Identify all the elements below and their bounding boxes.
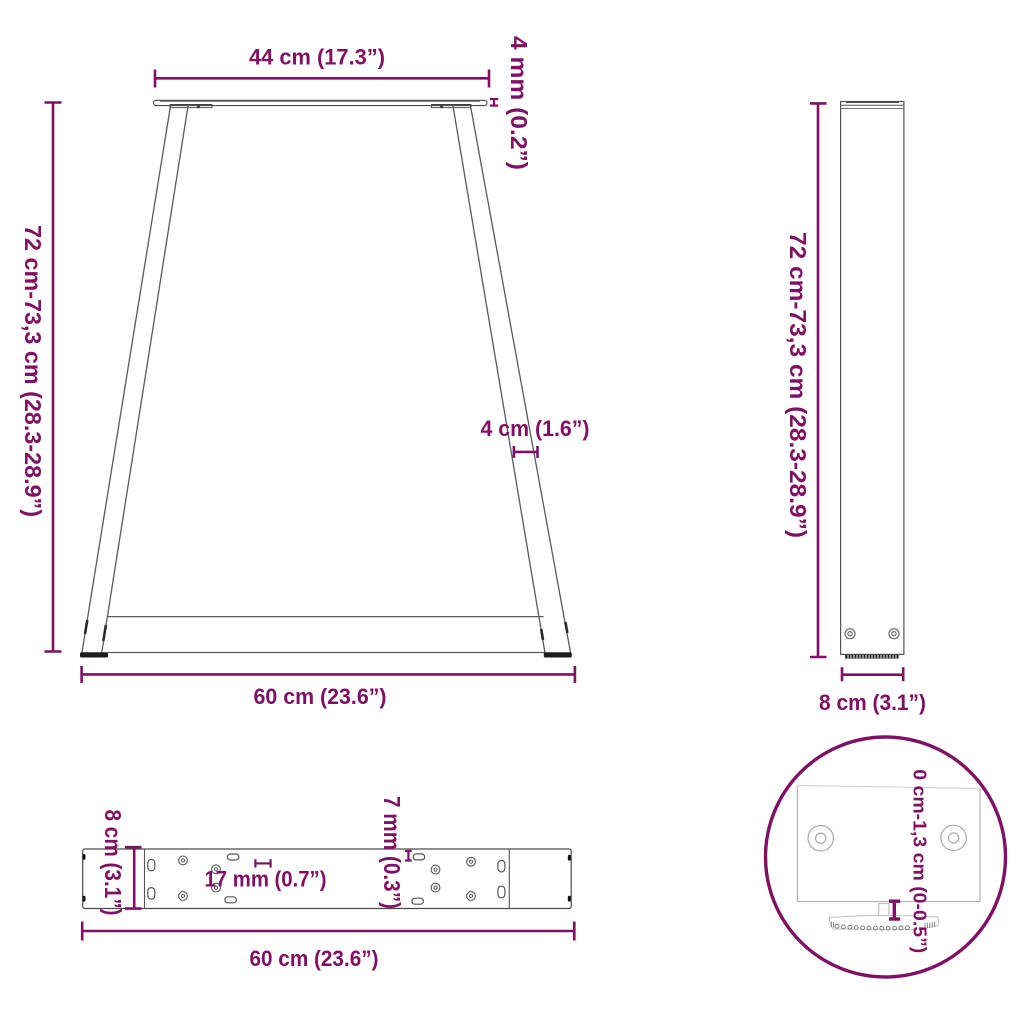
svg-text:72 cm-73,3 cm (28.3-28.9”): 72 cm-73,3 cm (28.3-28.9”) (20, 225, 46, 517)
svg-text:60 cm (23.6”): 60 cm (23.6”) (254, 684, 387, 709)
svg-text:0 cm-1,3 cm (0-0.5”): 0 cm-1,3 cm (0-0.5”) (910, 769, 931, 953)
svg-text:4 cm (1.6”): 4 cm (1.6”) (481, 416, 590, 441)
svg-text:8 cm (3.1”): 8 cm (3.1”) (100, 810, 126, 916)
svg-text:7 mm (0.3”): 7 mm (0.3”) (379, 796, 405, 909)
svg-text:44 cm (17.3”): 44 cm (17.3”) (249, 45, 385, 70)
svg-text:17 mm (0.7”): 17 mm (0.7”) (205, 867, 327, 892)
svg-text:72 cm-73,3 cm (28.3-28.9”): 72 cm-73,3 cm (28.3-28.9”) (785, 232, 811, 538)
svg-text:8 cm (3.1”): 8 cm (3.1”) (819, 690, 926, 715)
svg-text:60 cm (23.6”): 60 cm (23.6”) (250, 946, 379, 971)
svg-text:4 mm (0.2”): 4 mm (0.2”) (506, 36, 532, 170)
